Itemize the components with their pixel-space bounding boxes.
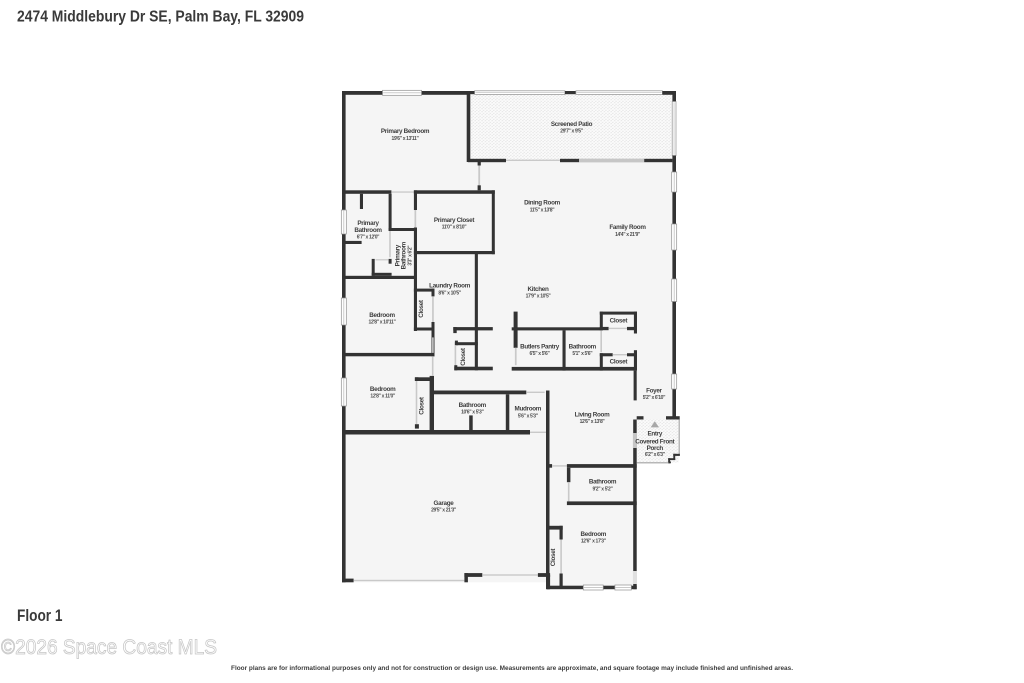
svg-text:10'6" x 5'3": 10'6" x 5'3" [461,410,484,416]
svg-text:12'6" x 13'8": 12'6" x 13'8" [580,419,606,425]
svg-text:Closet: Closet [550,548,557,567]
svg-text:5'1" x 5'6": 5'1" x 5'6" [572,351,593,357]
svg-text:29'7" x 9'5": 29'7" x 9'5" [560,129,583,135]
svg-text:Closet: Closet [460,347,467,366]
svg-text:17'9" x 10'5": 17'9" x 10'5" [526,294,552,300]
svg-text:Foyer: Foyer [646,388,662,395]
svg-text:11'0" x 8'10": 11'0" x 8'10" [442,225,468,231]
svg-text:12'6" x 17'3": 12'6" x 17'3" [581,539,607,545]
svg-text:29'5" x 21'3": 29'5" x 21'3" [431,508,457,514]
svg-text:Living Room: Living Room [575,412,611,419]
svg-text:Bedroom: Bedroom [581,531,607,538]
svg-text:Porch: Porch [647,445,664,452]
svg-text:19'6" x 13'11": 19'6" x 13'11" [392,136,420,142]
svg-text:6'7" x 12'0": 6'7" x 12'0" [357,235,380,241]
svg-text:9'2" x 5'2": 9'2" x 5'2" [593,486,614,492]
svg-text:Bathroom: Bathroom [354,227,382,234]
svg-text:2474 Middlebury Dr SE, Palm Ba: 2474 Middlebury Dr SE, Palm Bay, FL 3290… [17,9,304,26]
svg-text:Laundry Room: Laundry Room [429,283,471,290]
svg-text:Bathroom: Bathroom [569,343,597,350]
svg-text:Bathroom: Bathroom [589,479,617,486]
svg-text:Bathroom: Bathroom [459,402,487,409]
svg-text:Closet: Closet [610,317,629,324]
svg-text:5'2" x 6'10": 5'2" x 6'10" [643,395,666,401]
svg-text:Entry: Entry [647,431,662,438]
svg-text:8'6" x 10'5": 8'6" x 10'5" [438,290,461,296]
svg-text:Closet: Closet [610,358,629,365]
svg-text:5'6" x 5'3": 5'6" x 5'3" [518,413,539,419]
svg-text:Floor 1: Floor 1 [17,607,63,625]
svg-text:Primary Closet: Primary Closet [434,217,475,224]
svg-text:Family Room: Family Room [609,224,646,231]
svg-text:©2026 Space Coast MLS: ©2026 Space Coast MLS [1,635,217,659]
svg-text:Closet: Closet [419,396,426,415]
svg-text:Screened Patio: Screened Patio [551,121,593,128]
svg-text:Bedroom: Bedroom [370,386,396,393]
svg-text:Bedroom: Bedroom [369,312,395,319]
svg-text:11'5" x 13'8": 11'5" x 13'8" [530,207,556,213]
svg-text:Garage: Garage [434,500,455,507]
svg-text:Floor plans are for informatio: Floor plans are for informational purpos… [231,665,793,672]
svg-text:3'3" x 6'2": 3'3" x 6'2" [408,245,414,266]
svg-text:6'5" x 5'6": 6'5" x 5'6" [530,351,551,357]
svg-text:14'4" x 21'9": 14'4" x 21'9" [615,232,641,238]
svg-text:6'2" x 6'3": 6'2" x 6'3" [645,452,666,458]
svg-text:12'8" x 10'11": 12'8" x 10'11" [369,320,397,326]
svg-text:Primary Bedroom: Primary Bedroom [381,128,430,135]
svg-text:Mudroom: Mudroom [515,406,542,413]
svg-text:Dining Room: Dining Room [524,200,561,207]
svg-text:12'8" x 11'0": 12'8" x 11'0" [370,394,396,400]
svg-text:Closet: Closet [418,299,425,318]
svg-text:Kitchen: Kitchen [528,286,549,293]
svg-text:Butlers Pantry: Butlers Pantry [520,343,560,350]
